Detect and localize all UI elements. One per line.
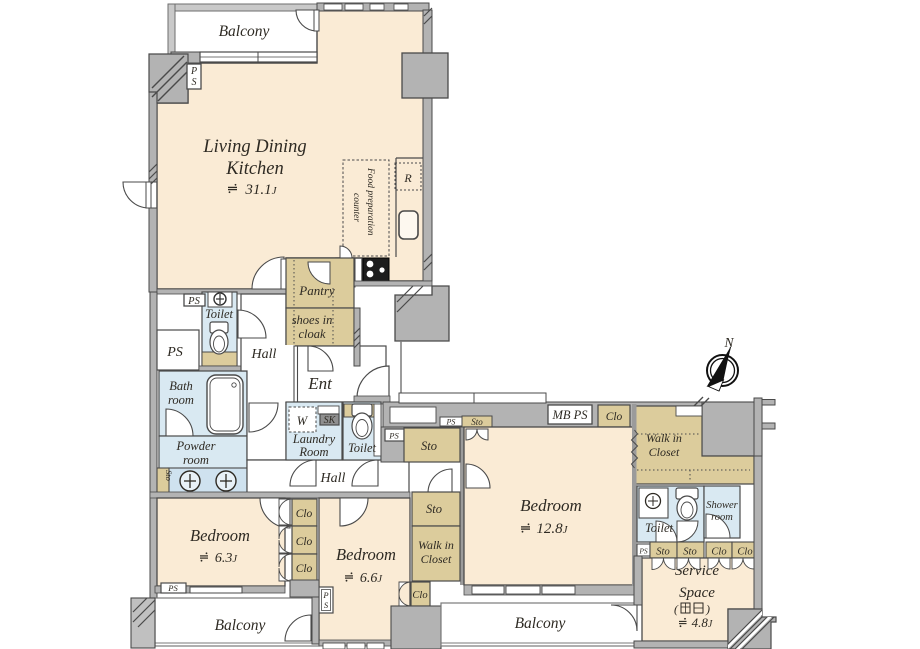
svg-text:Clo: Clo (412, 590, 427, 601)
svg-text:Clo: Clo (737, 547, 752, 558)
svg-text:Balcony: Balcony (219, 23, 270, 40)
svg-text:MB PS: MB PS (551, 408, 588, 422)
svg-text:Food preparation: Food preparation (365, 167, 375, 236)
svg-text:SK: SK (324, 415, 337, 426)
svg-text:6.6J: 6.6J (360, 571, 384, 586)
svg-text:PS: PS (167, 583, 178, 593)
svg-text:Walk in: Walk in (646, 431, 682, 445)
svg-text:Clo: Clo (711, 547, 726, 558)
svg-text:N: N (723, 335, 734, 350)
svg-text:PS: PS (187, 296, 200, 307)
svg-text:Hall: Hall (251, 347, 277, 362)
svg-text:Toilet: Toilet (645, 521, 674, 535)
svg-text:Space: Space (679, 585, 715, 601)
svg-text:Bath: Bath (169, 379, 193, 393)
svg-text:Toilet: Toilet (205, 307, 234, 321)
svg-text:Room: Room (298, 445, 328, 459)
svg-text:Hall: Hall (320, 471, 346, 486)
svg-text:6.3J: 6.3J (215, 551, 239, 566)
svg-text:W: W (297, 414, 309, 428)
svg-text:room: room (711, 512, 733, 523)
svg-text:12.8J: 12.8J (536, 521, 568, 537)
svg-text:counter: counter (351, 193, 361, 222)
svg-text:Clo: Clo (296, 508, 313, 520)
svg-text:PS: PS (446, 418, 456, 427)
svg-text:Clo: Clo (296, 563, 313, 575)
svg-text:Pantry: Pantry (298, 283, 335, 298)
svg-text:Shower: Shower (706, 500, 738, 511)
svg-text:Laundry: Laundry (292, 432, 336, 446)
svg-text:Sto: Sto (426, 502, 442, 516)
svg-text:Sto: Sto (656, 547, 669, 558)
svg-text:P: P (322, 590, 328, 600)
svg-text:Bedroom: Bedroom (190, 526, 250, 545)
svg-text:31.1J: 31.1J (244, 182, 277, 198)
svg-text:Ent: Ent (307, 374, 333, 393)
svg-text:PS: PS (638, 547, 648, 556)
svg-text:Walk in: Walk in (418, 538, 454, 552)
svg-text:Living Dining: Living Dining (202, 137, 306, 157)
svg-text:Sto: Sto (164, 470, 174, 481)
svg-text:PS: PS (388, 431, 399, 441)
svg-text:R: R (403, 171, 412, 185)
svg-text:Balcony: Balcony (215, 617, 266, 634)
svg-text:Powder: Powder (176, 439, 216, 453)
svg-text:Balcony: Balcony (515, 615, 566, 632)
svg-text:Sto: Sto (471, 417, 483, 427)
svg-text:cloak: cloak (298, 327, 326, 341)
svg-text:Bedroom: Bedroom (520, 496, 582, 515)
svg-text:room: room (168, 393, 194, 407)
svg-text:Sto: Sto (421, 439, 437, 453)
svg-text:P: P (190, 66, 197, 77)
svg-text:Toilet: Toilet (348, 441, 377, 455)
svg-text:Clo: Clo (606, 411, 623, 423)
svg-text:Clo: Clo (296, 536, 313, 548)
svg-text:Closet: Closet (421, 552, 452, 566)
svg-text:Bedroom: Bedroom (336, 545, 396, 564)
svg-text:Closet: Closet (649, 445, 680, 459)
svg-text:room: room (183, 453, 209, 467)
svg-text:Kitchen: Kitchen (225, 159, 284, 179)
svg-text:S: S (192, 77, 197, 88)
svg-text:Sto: Sto (683, 547, 696, 558)
svg-text:shoes in: shoes in (292, 313, 333, 327)
svg-text:PS: PS (166, 345, 183, 360)
svg-text:): ) (705, 602, 710, 616)
